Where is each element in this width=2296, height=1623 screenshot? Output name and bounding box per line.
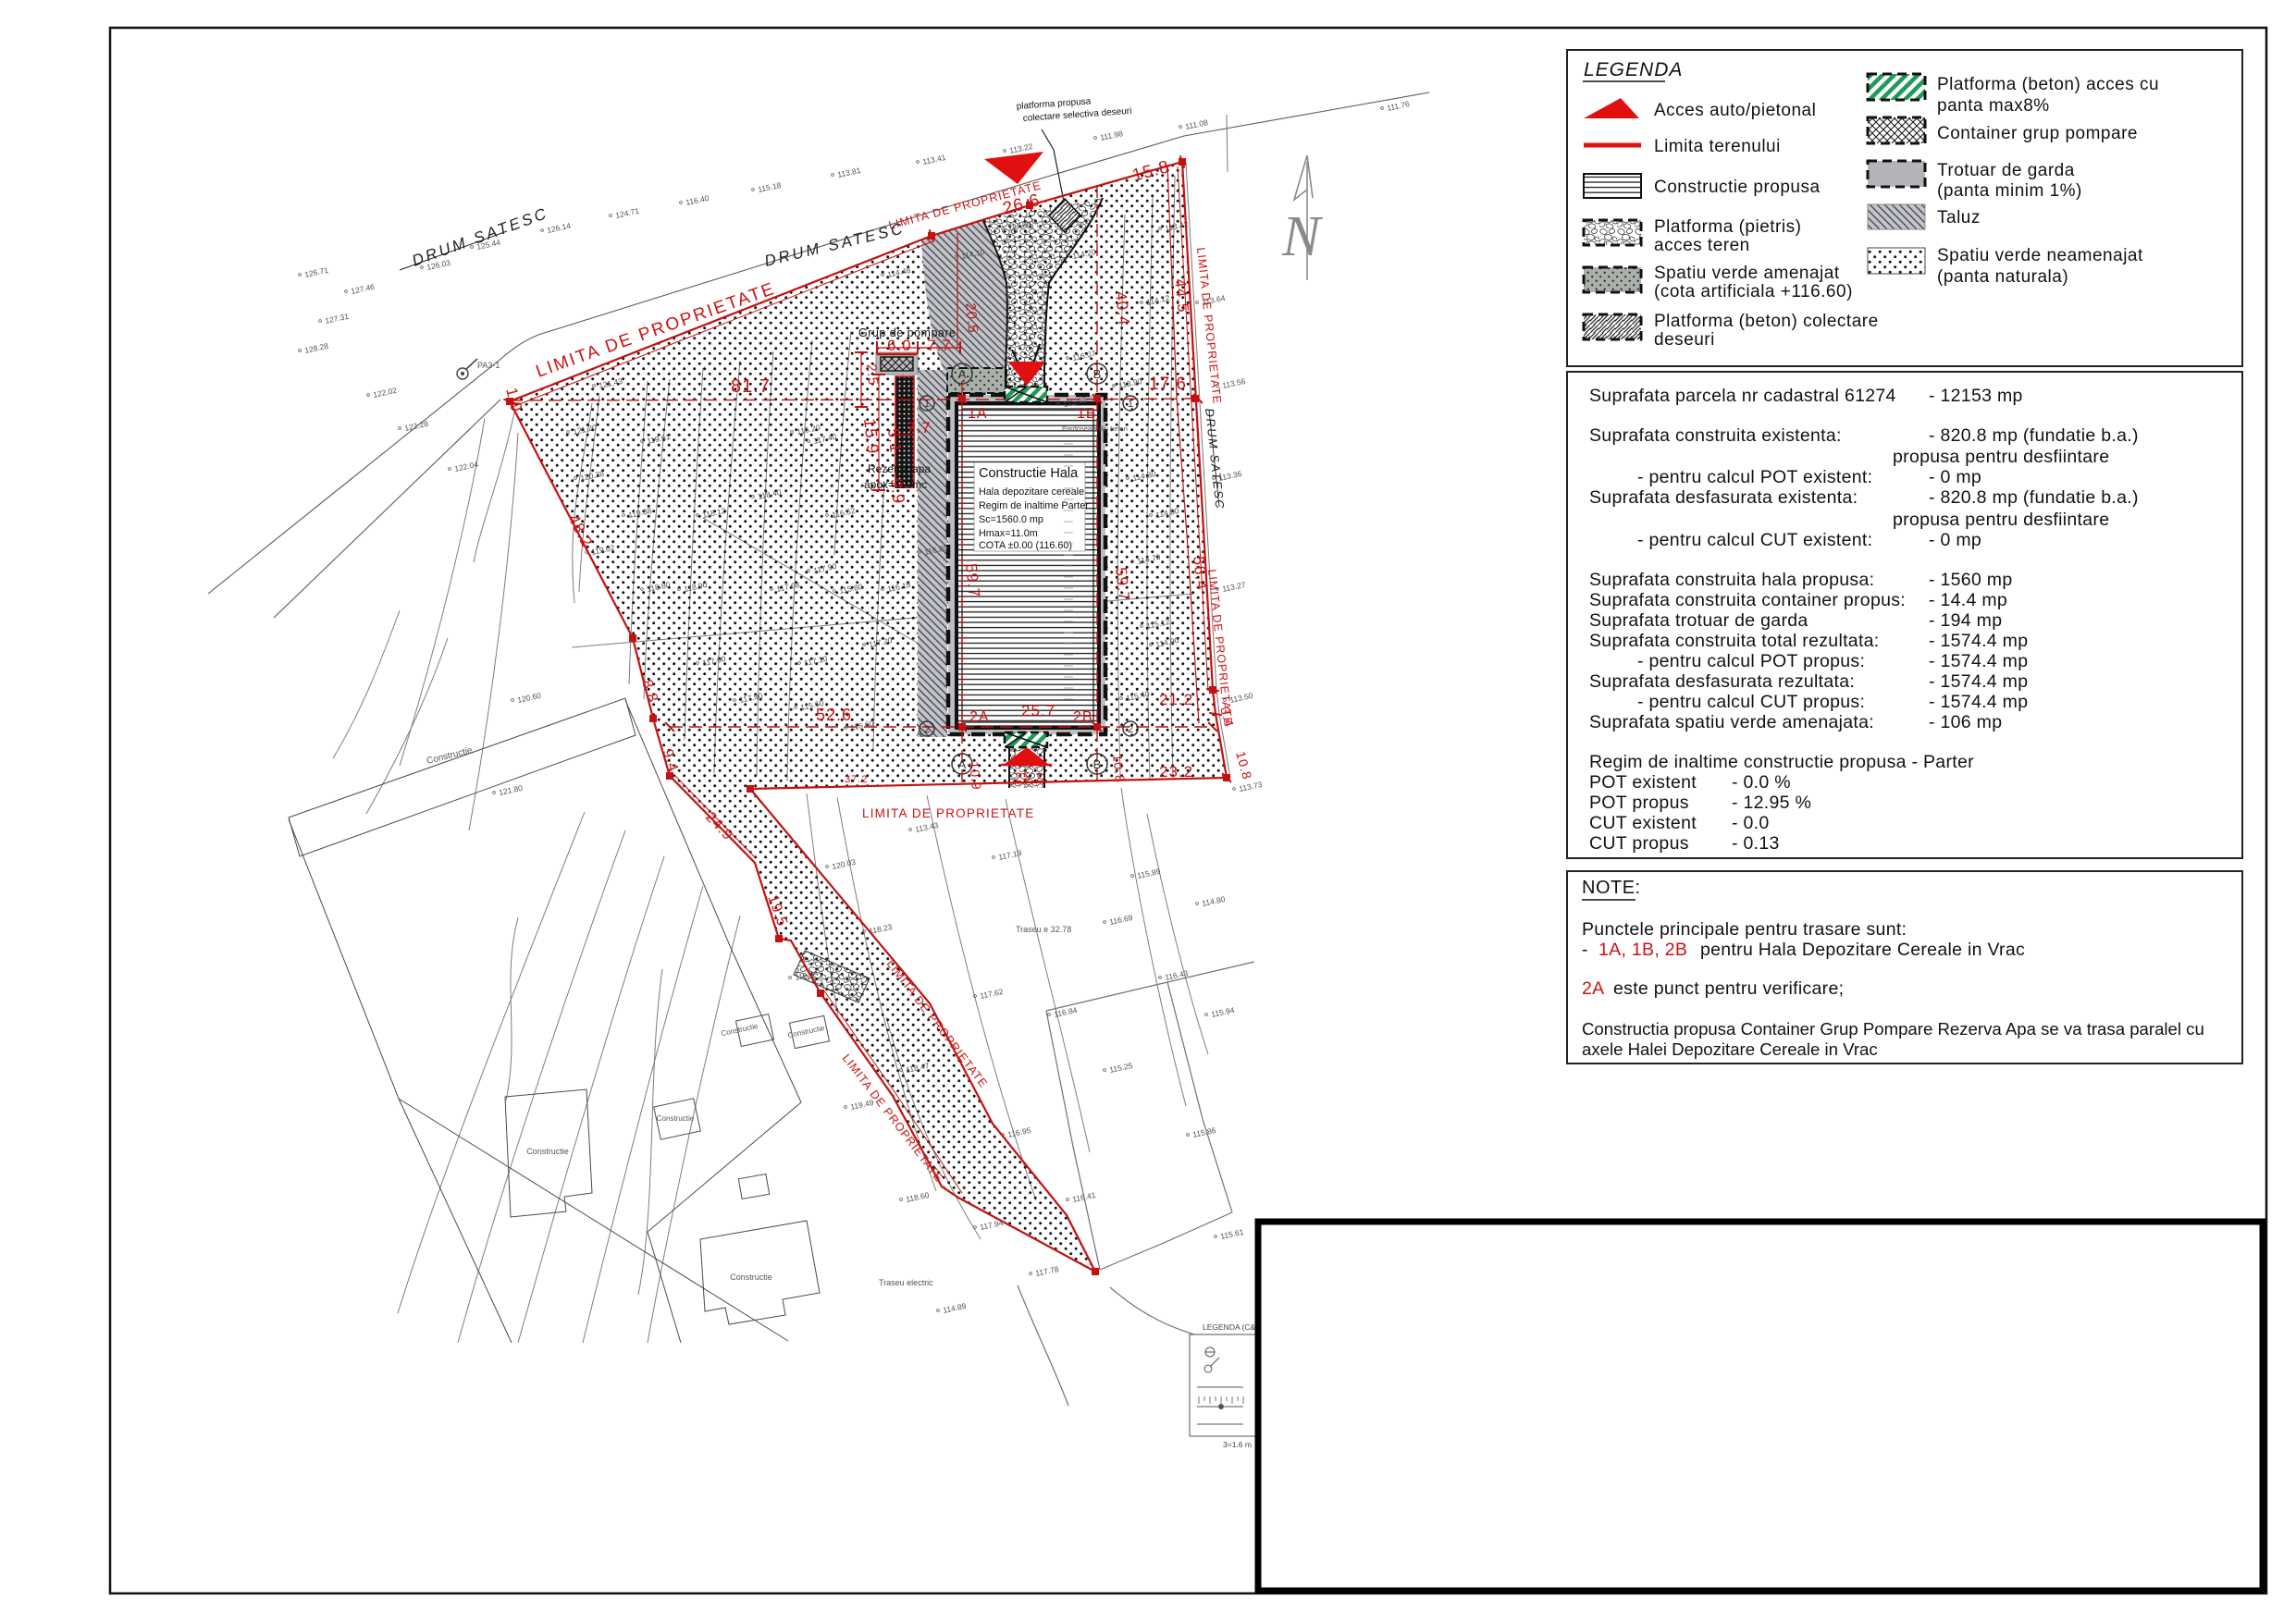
svg-text:Regim de inaltime Parter: Regim de inaltime Parter bbox=[979, 500, 1089, 511]
svg-text:A: A bbox=[958, 367, 967, 381]
svg-text:2A: 2A bbox=[969, 709, 990, 725]
svg-text:pentru Hala Depozitare Cereale: pentru Hala Depozitare Cereale in Vrac bbox=[1700, 940, 2025, 960]
svg-text:Constructie: Constructie bbox=[730, 1273, 772, 1282]
svg-text:Constructia propusa Container: Constructia propusa Container Grup Pompa… bbox=[1582, 1019, 2204, 1039]
svg-text:1A, 1B, 2B: 1A, 1B, 2B bbox=[1599, 940, 1687, 960]
svg-text:2: 2 bbox=[1128, 724, 1133, 735]
svg-text:- pentru calcul CUT propus:: - pentru calcul CUT propus: bbox=[1637, 692, 1865, 712]
svg-text:A: A bbox=[958, 757, 967, 771]
svg-text:- pentru calcul POT existent:: - pentru calcul POT existent: bbox=[1637, 467, 1872, 487]
svg-text:10.8: 10.8 bbox=[1110, 754, 1128, 784]
svg-text:Container grup pompare: Container grup pompare bbox=[1937, 124, 2138, 143]
svg-text:(panta naturala): (panta naturala) bbox=[1937, 267, 2068, 287]
svg-text:Hmax=11.0m: Hmax=11.0m bbox=[979, 528, 1038, 539]
svg-text:37.2: 37.2 bbox=[845, 774, 868, 785]
svg-text:17.6: 17.6 bbox=[1149, 375, 1187, 394]
svg-text:Suprafata construita total rez: Suprafata construita total rezultata: bbox=[1589, 631, 1880, 651]
svg-text:COTA ±0.00 (116.60): COTA ±0.00 (116.60) bbox=[979, 540, 1072, 551]
svg-text:23.2: 23.2 bbox=[1159, 763, 1193, 781]
svg-text:Rezerva apa: Rezerva apa bbox=[868, 462, 931, 475]
svg-text:- 0.0 %: - 0.0 % bbox=[1732, 772, 1791, 793]
svg-text:Punctele principale pentru tra: Punctele principale pentru trasare sunt: bbox=[1582, 919, 1907, 940]
svg-text:Traseu e 32.78: Traseu e 32.78 bbox=[1016, 925, 1071, 934]
svg-text:Spatiu verde neamenajat: Spatiu verde neamenajat bbox=[1937, 246, 2143, 265]
svg-text:propusa pentru desfiintare: propusa pentru desfiintare bbox=[1893, 447, 2109, 467]
svg-text:Platforma (pietris): Platforma (pietris) bbox=[1654, 217, 1801, 237]
svg-text:panta max8%: panta max8% bbox=[1937, 96, 2050, 116]
svg-text:1B: 1B bbox=[1077, 406, 1097, 422]
svg-text:axele Halei Depozitare Cereale: axele Halei Depozitare Cereale in Vrac bbox=[1582, 1039, 1878, 1059]
svg-text:59.7: 59.7 bbox=[962, 562, 983, 598]
svg-text:- 1560 mp: - 1560 mp bbox=[1929, 570, 2013, 590]
svg-text:- 1574.4 mp: - 1574.4 mp bbox=[1929, 631, 2028, 651]
svg-text:-: - bbox=[1582, 940, 1588, 960]
svg-text:1: 1 bbox=[1128, 399, 1133, 410]
svg-text:Suprafata construita hala prop: Suprafata construita hala propusa: bbox=[1589, 570, 1874, 590]
svg-text:N: N bbox=[1281, 205, 1324, 268]
svg-text:Suprafata spatiu verde amenaja: Suprafata spatiu verde amenajata: bbox=[1589, 712, 1874, 732]
svg-text:Suprafata trotuar de garda: Suprafata trotuar de garda bbox=[1589, 610, 1808, 631]
svg-text:- 106 mp: - 106 mp bbox=[1929, 712, 2002, 732]
svg-text:CUT propus: CUT propus bbox=[1589, 833, 1689, 854]
svg-text:40.4: 40.4 bbox=[1112, 290, 1133, 326]
svg-text:- 1574.4 mp: - 1574.4 mp bbox=[1929, 651, 2028, 671]
svg-text:- 194 mp: - 194 mp bbox=[1929, 610, 2002, 631]
svg-text:POT propus: POT propus bbox=[1589, 793, 1689, 813]
svg-text:- 820.8 mp (fundatie b.a.): - 820.8 mp (fundatie b.a.) bbox=[1929, 487, 2139, 508]
svg-text:2: 2 bbox=[924, 724, 930, 735]
svg-text:B: B bbox=[1093, 757, 1102, 771]
svg-text:Constructie: Constructie bbox=[526, 1147, 569, 1156]
svg-text:Trotuar de garda: Trotuar de garda bbox=[1937, 161, 2075, 180]
svg-text:este punct pentru verificare;: este punct pentru verificare; bbox=[1613, 978, 1844, 999]
svg-text:- 14.4 mp: - 14.4 mp bbox=[1929, 590, 2007, 610]
svg-text:- pentru calcul POT propus:: - pentru calcul POT propus: bbox=[1637, 651, 1865, 671]
svg-text:Limita terenului: Limita terenului bbox=[1654, 137, 1781, 156]
svg-text:NOTE:: NOTE: bbox=[1582, 878, 1641, 898]
svg-text:25.7: 25.7 bbox=[1021, 702, 1055, 719]
svg-text:Taluz: Taluz bbox=[1937, 208, 1981, 227]
svg-text:3=1.6 m: 3=1.6 m bbox=[1223, 1440, 1252, 1449]
svg-text:Constructie Hala: Constructie Hala bbox=[979, 466, 1079, 481]
svg-text:Platforma (beton) acces cu: Platforma (beton) acces cu bbox=[1937, 75, 2159, 94]
svg-text:1A: 1A bbox=[968, 406, 988, 422]
svg-text:deseuri: deseuri bbox=[1654, 330, 1715, 350]
svg-text:Grup de pompare: Grup de pompare bbox=[858, 326, 956, 339]
svg-text:LIMITA DE PROPRIETATE: LIMITA DE PROPRIETATE bbox=[862, 806, 1034, 820]
svg-text:20.5: 20.5 bbox=[962, 302, 981, 335]
svg-text:1: 1 bbox=[924, 399, 930, 410]
svg-text:- 12153 mp: - 12153 mp bbox=[1929, 386, 2023, 406]
svg-text:59.7: 59.7 bbox=[1112, 566, 1133, 602]
svg-text:- 1574.4 mp: - 1574.4 mp bbox=[1929, 692, 2028, 712]
svg-text:52.6: 52.6 bbox=[816, 706, 852, 724]
svg-text:Suprafata desfasurata existent: Suprafata desfasurata existenta: bbox=[1589, 487, 1858, 508]
svg-text:B: B bbox=[1093, 367, 1102, 381]
svg-text:Suprafata desfasurata rezultat: Suprafata desfasurata rezultata: bbox=[1589, 671, 1855, 692]
svg-text:21.2: 21.2 bbox=[1159, 691, 1193, 708]
svg-text:Platforma (beton) colectare: Platforma (beton) colectare bbox=[1654, 312, 1879, 331]
svg-text:Traseu electric: Traseu electric bbox=[879, 1278, 933, 1287]
svg-text:Suprafata construita container: Suprafata construita container propus: bbox=[1589, 590, 1906, 610]
svg-text:CUT existent: CUT existent bbox=[1589, 813, 1697, 833]
svg-text:Acces auto/pietonal: Acces auto/pietonal bbox=[1654, 101, 1816, 120]
svg-text:44.5: 44.5 bbox=[1171, 277, 1192, 314]
svg-text:Constructie: Constructie bbox=[657, 1114, 695, 1123]
svg-text:Spatiu verde amenajat: Spatiu verde amenajat bbox=[1654, 264, 1840, 283]
svg-text:PA3-1: PA3-1 bbox=[477, 361, 500, 370]
svg-text:(panta minim 1%): (panta minim 1%) bbox=[1937, 181, 2082, 201]
svg-text:LEGENDA: LEGENDA bbox=[1584, 59, 1683, 80]
svg-text:2A: 2A bbox=[1582, 978, 1604, 999]
svg-text:- 0.13: - 0.13 bbox=[1732, 833, 1780, 854]
svg-text:propusa pentru desfiintare: propusa pentru desfiintare bbox=[1893, 510, 2109, 530]
svg-text:Regim de inaltime constructie: Regim de inaltime constructie propusa - … bbox=[1589, 752, 1974, 772]
svg-text:acces teren: acces teren bbox=[1654, 236, 1750, 255]
svg-text:- 0 mp: - 0 mp bbox=[1929, 530, 1981, 550]
svg-text:Pardoseala din beton: Pardoseala din beton bbox=[1062, 424, 1128, 433]
svg-text:- 12.95 %: - 12.95 % bbox=[1732, 793, 1811, 813]
svg-text:(cota artificiala +116.60): (cota artificiala +116.60) bbox=[1654, 282, 1853, 301]
svg-text:Sc=1560.0 mp: Sc=1560.0 mp bbox=[979, 514, 1043, 525]
svg-text:- 0.0: - 0.0 bbox=[1732, 813, 1770, 833]
svg-text:apox=110mc: apox=110mc bbox=[864, 478, 927, 491]
svg-text:15.9: 15.9 bbox=[860, 417, 883, 455]
svg-text:POT existent: POT existent bbox=[1589, 772, 1697, 793]
svg-text:25.2: 25.2 bbox=[1015, 769, 1043, 784]
svg-text:10.9: 10.9 bbox=[967, 761, 984, 792]
svg-text:7.7: 7.7 bbox=[907, 419, 932, 436]
svg-text:81.7: 81.7 bbox=[731, 376, 771, 397]
svg-text:Suprafata parcela nr cadastral: Suprafata parcela nr cadastral 61274 bbox=[1589, 386, 1896, 406]
svg-text:- pentru calcul CUT existent:: - pentru calcul CUT existent: bbox=[1637, 530, 1872, 550]
svg-text:- 0 mp: - 0 mp bbox=[1929, 467, 1981, 487]
svg-text:- 820.8 mp (fundatie b.a.): - 820.8 mp (fundatie b.a.) bbox=[1929, 425, 2139, 446]
svg-text:2B: 2B bbox=[1073, 709, 1093, 725]
svg-text:5.1: 5.1 bbox=[884, 427, 905, 453]
svg-text:Constructie propusa: Constructie propusa bbox=[1654, 178, 1821, 197]
svg-text:- 1574.4 mp: - 1574.4 mp bbox=[1929, 671, 2028, 692]
svg-text:Suprafata construita existenta: Suprafata construita existenta: bbox=[1589, 425, 1842, 446]
